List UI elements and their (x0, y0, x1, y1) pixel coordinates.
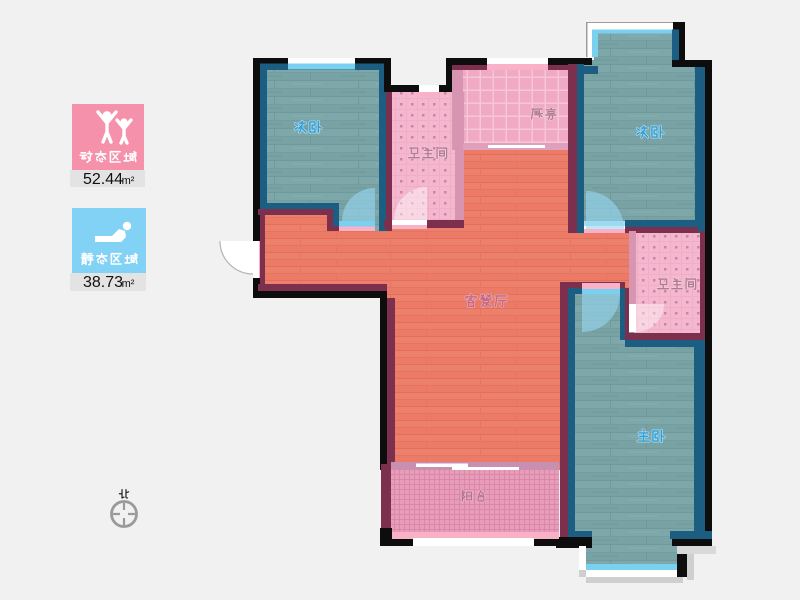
svg-text:m²: m² (122, 278, 135, 290)
svg-text:m²: m² (122, 175, 135, 187)
svg-text:38.73: 38.73 (83, 274, 123, 291)
svg-text:52.44: 52.44 (83, 171, 123, 188)
